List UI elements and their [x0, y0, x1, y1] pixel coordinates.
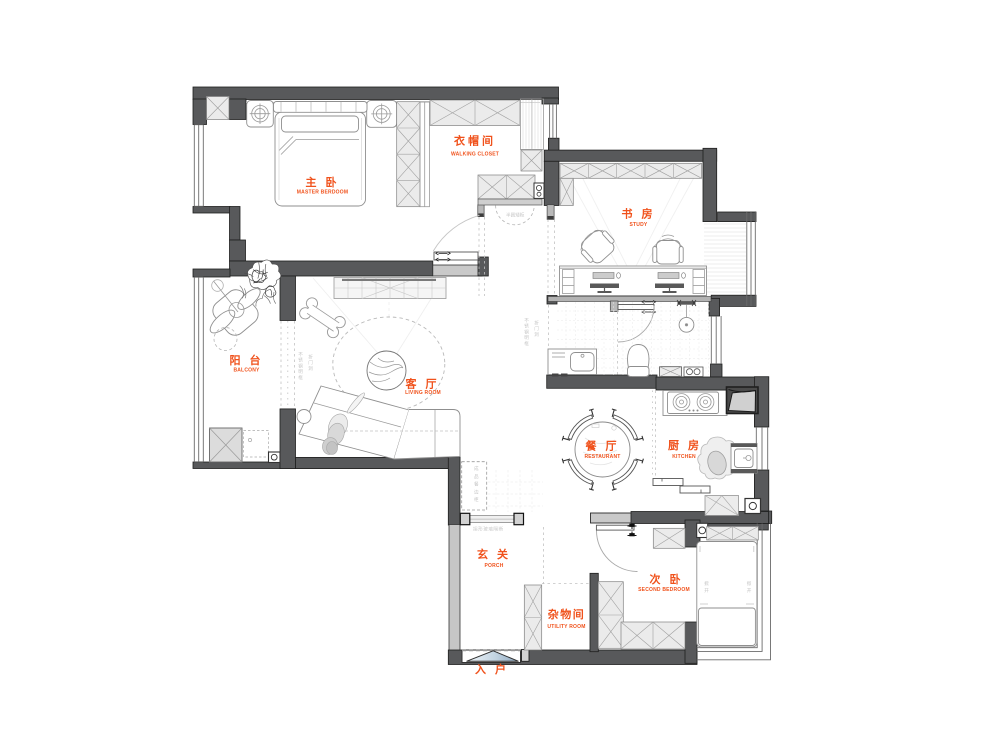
svg-text:阳 台: 阳 台	[229, 353, 263, 367]
svg-text:杂物间: 杂物间	[548, 607, 586, 621]
svg-text:主 卧: 主 卧	[305, 175, 339, 189]
svg-text:SECOND BEDROOM: SECOND BEDROOM	[638, 587, 690, 593]
svg-text:厨 房: 厨 房	[668, 438, 702, 452]
svg-text:BALCONY: BALCONY	[233, 368, 260, 374]
svg-text:客 厅: 客 厅	[404, 377, 439, 391]
svg-text:入 户: 入 户	[475, 662, 509, 676]
svg-text:餐 厅: 餐 厅	[584, 439, 619, 453]
svg-text:衣帽间: 衣帽间	[454, 134, 496, 148]
svg-text:拐形玻璃隔断: 拐形玻璃隔断	[473, 526, 504, 533]
svg-text:折门洞: 折门洞	[308, 354, 313, 371]
svg-text:STUDY: STUDY	[630, 222, 648, 228]
svg-text:MASTER BERDOOM: MASTER BERDOOM	[297, 190, 348, 196]
svg-text:KITCHEN: KITCHEN	[672, 454, 696, 460]
svg-text:半圆矮柜: 半圆矮柜	[506, 212, 525, 219]
svg-text:WALKING CLOSET: WALKING CLOSET	[451, 152, 499, 158]
svg-text:折门洞: 折门洞	[534, 320, 539, 337]
svg-text:玄 关: 玄 关	[477, 547, 511, 561]
svg-text:UTILITY ROOM: UTILITY ROOM	[547, 624, 585, 630]
svg-text:次 卧: 次 卧	[649, 572, 683, 586]
svg-text:不锈钢明框: 不锈钢明框	[524, 318, 529, 347]
svg-text:RESTAURANT: RESTAURANT	[584, 454, 620, 460]
svg-text:成品餐边柜: 成品餐边柜	[474, 465, 479, 503]
svg-text:LIVING ROOM: LIVING ROOM	[405, 390, 441, 396]
svg-text:PORCH: PORCH	[484, 563, 503, 569]
svg-text:不锈钢明框: 不锈钢明框	[298, 352, 303, 381]
svg-text:书 房: 书 房	[621, 207, 655, 221]
